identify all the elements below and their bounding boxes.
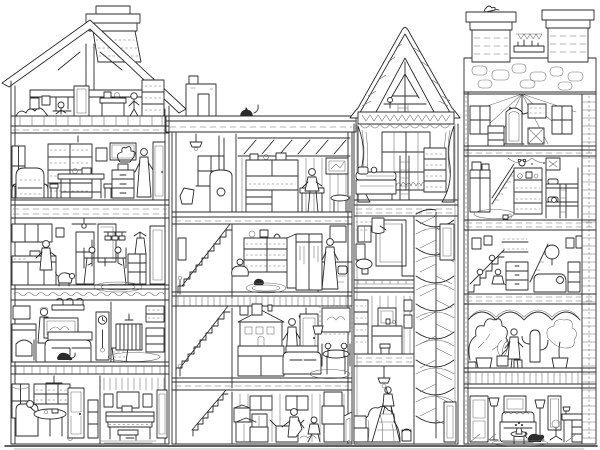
figures-on-stairs xyxy=(477,255,495,283)
attic-figure xyxy=(129,93,139,116)
room-library xyxy=(12,136,165,200)
floor-band xyxy=(11,200,169,218)
building-gabled-townhouse xyxy=(2,6,186,444)
bookcase xyxy=(244,230,290,272)
room-dressing xyxy=(354,292,414,354)
workbench-figure xyxy=(300,169,324,212)
right-chimney xyxy=(542,10,594,62)
room-stone-parlor xyxy=(464,396,596,446)
dressing-figure xyxy=(322,239,338,289)
bunk-bed xyxy=(546,168,578,218)
wardrobe xyxy=(287,234,322,290)
room-parlor-piano xyxy=(11,376,169,444)
room-bedroom-hall xyxy=(468,236,582,292)
quoin-edge xyxy=(582,94,596,444)
mantel-shelf xyxy=(514,34,544,52)
shelf-unit xyxy=(424,148,446,192)
roof-chimney-block xyxy=(186,76,216,116)
cat-on-roof-icon xyxy=(239,105,258,116)
room-renovation xyxy=(354,366,458,444)
room-conservatory xyxy=(464,310,596,388)
building-studio-house xyxy=(166,76,356,444)
chaise xyxy=(534,274,566,292)
dollhouse-on-sideboard xyxy=(238,305,284,376)
moving-boxes-left xyxy=(234,405,268,442)
room-canopy-attic xyxy=(464,92,596,146)
vanity xyxy=(372,308,402,354)
room-tower-bedroom xyxy=(356,124,454,202)
floor-band xyxy=(464,146,596,156)
floor-band xyxy=(11,116,169,133)
left-chimney xyxy=(466,12,516,62)
grandfather-clock xyxy=(96,312,109,360)
floor-band xyxy=(172,378,352,390)
unpacking-figures xyxy=(270,409,320,442)
armchair xyxy=(12,168,48,198)
floor-band xyxy=(464,220,596,230)
fireplace xyxy=(12,324,36,362)
room-bedroom xyxy=(232,226,352,293)
floor-band xyxy=(464,294,596,304)
room-studio xyxy=(180,134,350,212)
sofa xyxy=(283,346,321,374)
upright-piano xyxy=(106,406,154,440)
flat-roof-parapet xyxy=(166,116,356,132)
ornate-mirror xyxy=(320,306,352,334)
moving-boxes-right xyxy=(322,392,352,442)
balustrade xyxy=(464,368,596,388)
floor-band xyxy=(11,362,169,374)
dollhouse-illustration xyxy=(0,0,600,450)
room-kids xyxy=(470,158,578,219)
table-figure xyxy=(16,401,66,436)
floor-band xyxy=(11,285,169,300)
toy-shelf xyxy=(514,159,542,214)
floor-band xyxy=(354,354,414,366)
room-stairwell xyxy=(178,224,232,298)
toilet xyxy=(356,244,372,274)
bedroom-cat-icon xyxy=(254,279,264,285)
arched-mirror xyxy=(504,108,524,144)
reading-figure xyxy=(135,149,153,197)
room-sitting xyxy=(176,304,352,388)
floor-band xyxy=(354,280,414,288)
kitchen-dog-icon xyxy=(56,271,75,286)
building-tower xyxy=(350,28,460,445)
studio-cabinet xyxy=(246,153,298,212)
floor-band xyxy=(172,212,352,224)
room-attic-workshop xyxy=(16,44,164,116)
room-living xyxy=(12,299,164,363)
crib xyxy=(116,314,142,350)
plants xyxy=(468,319,577,368)
book-shelf xyxy=(354,300,368,354)
writing-desk xyxy=(562,407,582,442)
building-stone-house xyxy=(464,6,596,446)
chimney-bird-icon xyxy=(485,6,500,12)
stove xyxy=(210,170,232,212)
room-storage xyxy=(172,390,352,444)
stone-top xyxy=(464,6,596,94)
swing-figure xyxy=(53,97,71,114)
room-kitchen xyxy=(12,218,165,292)
wardrobe xyxy=(470,162,490,212)
ground-line xyxy=(5,446,597,449)
lintel-band xyxy=(358,112,454,124)
spiral-staircase xyxy=(416,210,456,443)
